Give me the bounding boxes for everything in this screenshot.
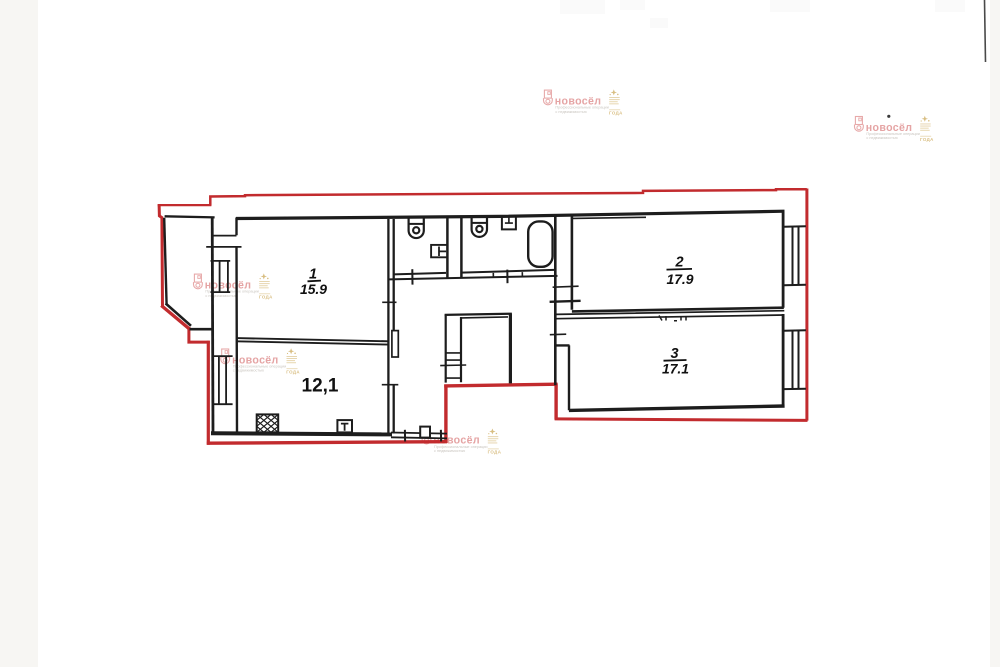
svg-text:17.9: 17.9	[666, 271, 693, 287]
svg-text:15.9: 15.9	[300, 281, 327, 297]
svg-text:17.1: 17.1	[662, 361, 689, 377]
svg-text:12,1: 12,1	[302, 376, 339, 397]
